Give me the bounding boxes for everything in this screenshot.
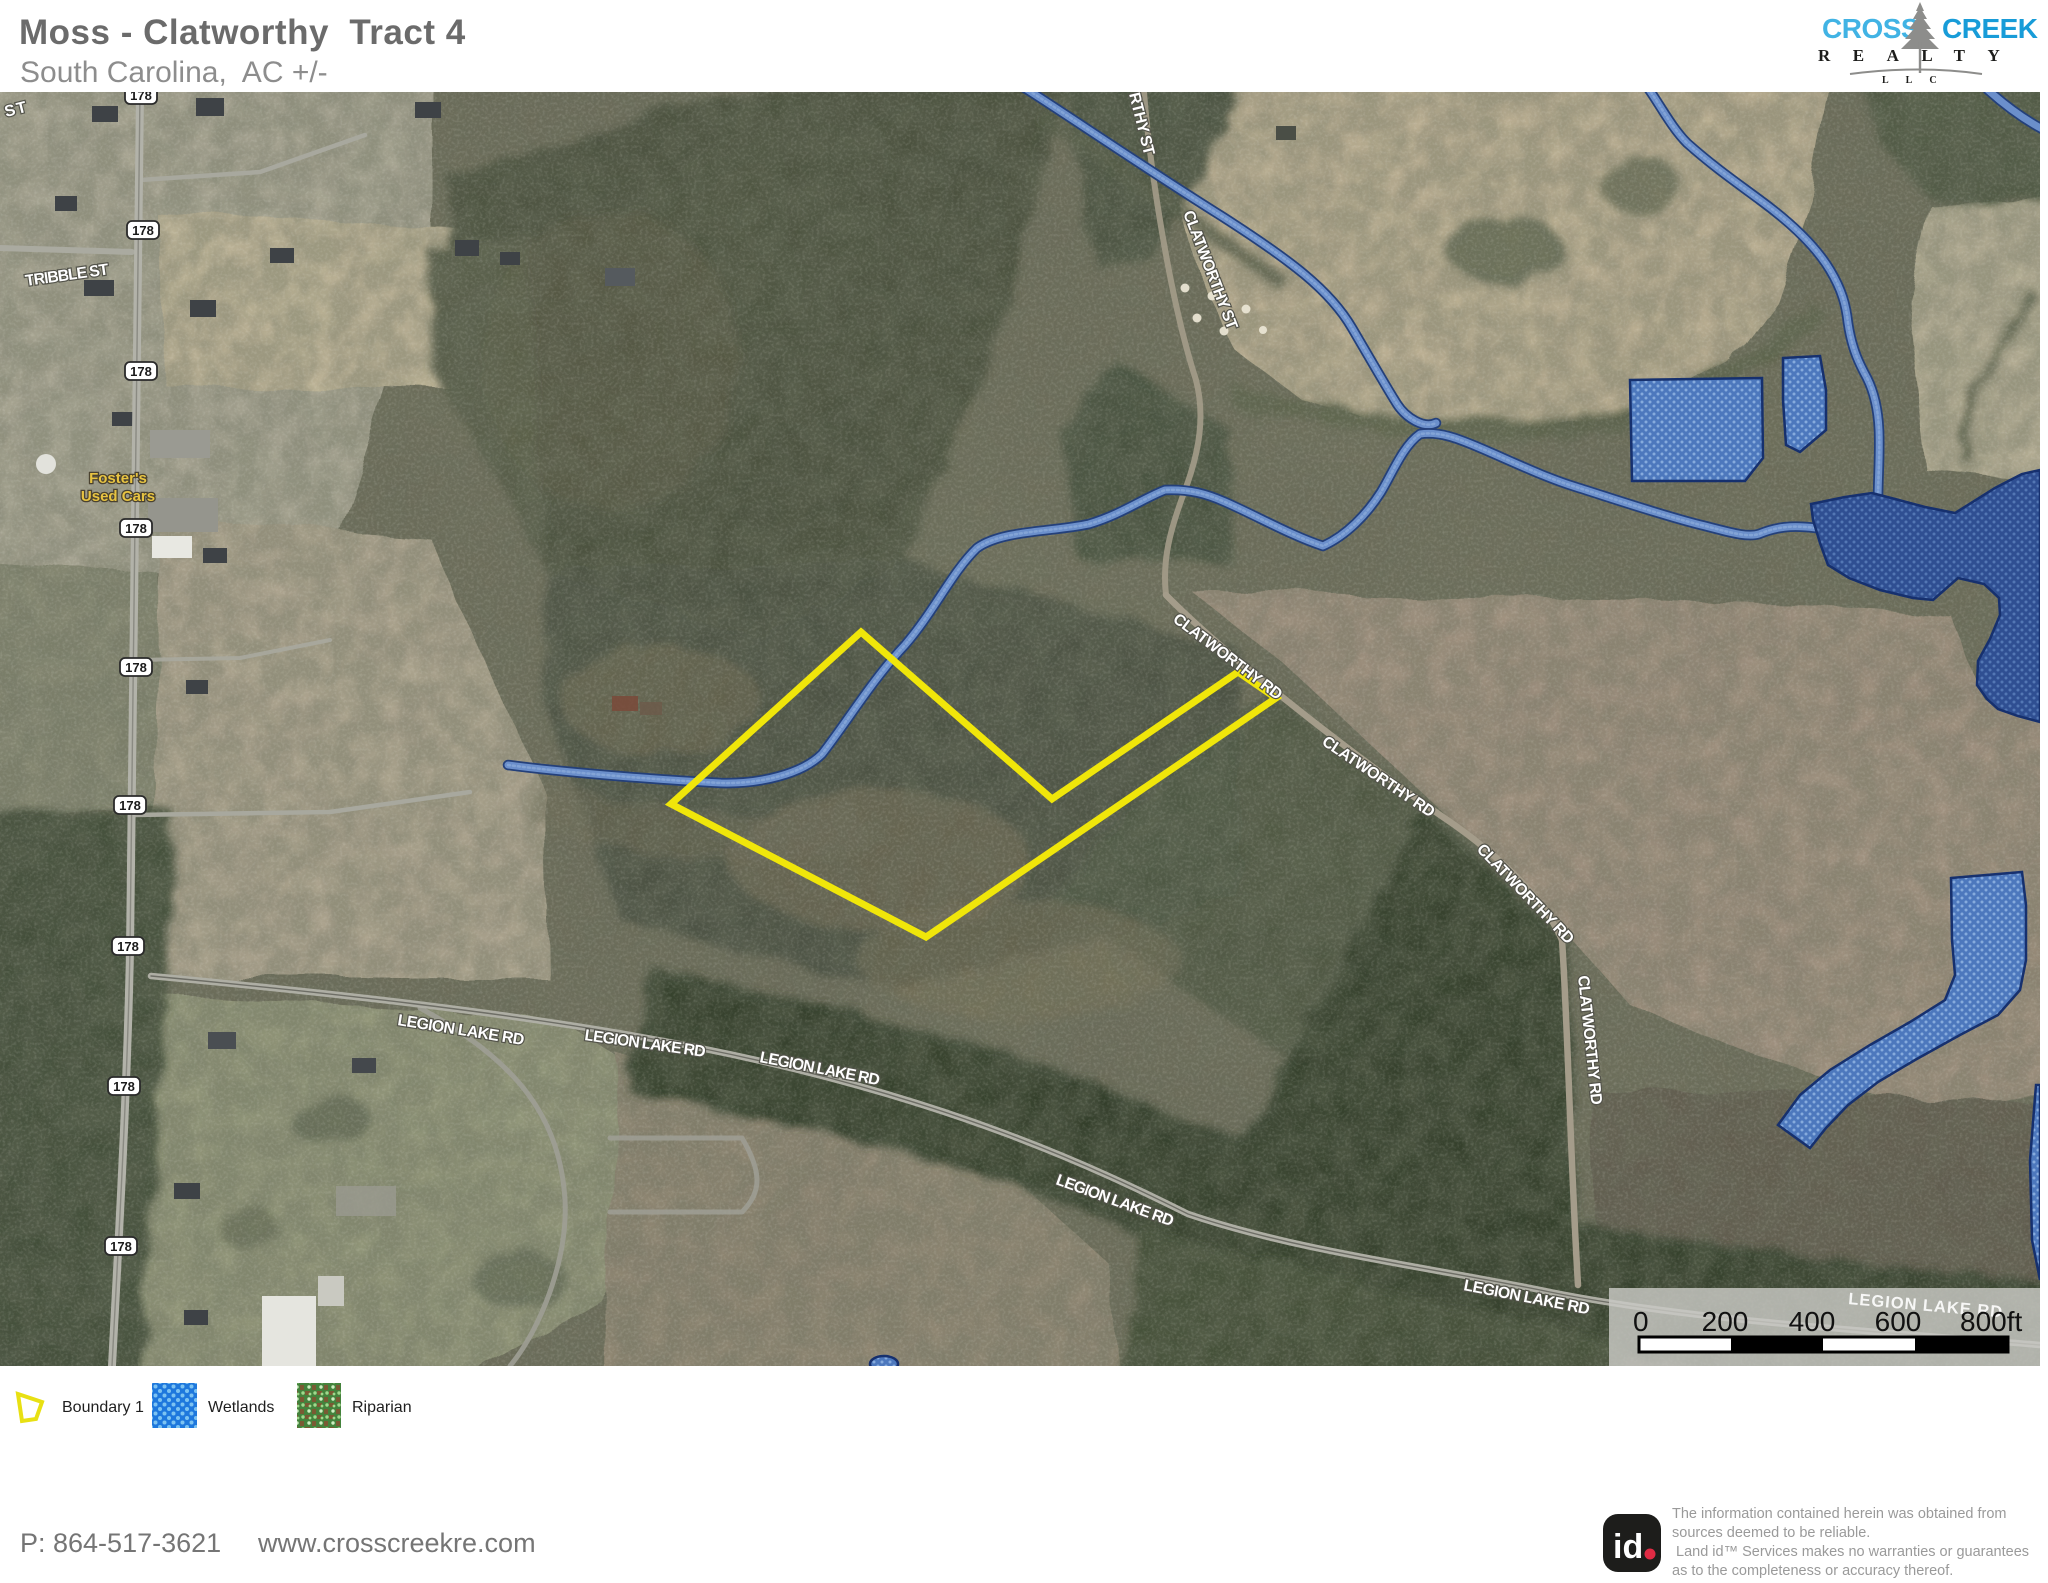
svg-text:CREEK: CREEK — [1942, 13, 2038, 44]
svg-text:600: 600 — [1875, 1306, 1922, 1337]
svg-text:800ft: 800ft — [1960, 1306, 2022, 1337]
svg-text:CROSS: CROSS — [1822, 13, 1919, 44]
svg-text:P: 864-517-3621: P: 864-517-3621 — [20, 1528, 221, 1558]
svg-text:The information contained here: The information contained herein was obt… — [1672, 1506, 2007, 1522]
svg-text:REALTY: REALTY — [1818, 46, 2022, 65]
svg-text:sources deemed to be reliable.: sources deemed to be reliable. — [1672, 1525, 1870, 1541]
svg-text:Land id™ Services makes no war: Land id™ Services makes no warranties or… — [1676, 1544, 2029, 1560]
svg-text:id: id — [1613, 1528, 1643, 1566]
svg-text:www.crosscreekre.com: www.crosscreekre.com — [257, 1528, 536, 1558]
svg-text:0: 0 — [1633, 1306, 1649, 1337]
svg-text:as to the completeness or accu: as to the completeness or accuracy there… — [1672, 1563, 1953, 1579]
svg-text:400: 400 — [1789, 1306, 1836, 1337]
svg-text:LLC: LLC — [1882, 75, 1954, 86]
svg-text:Boundary 1: Boundary 1 — [62, 1399, 144, 1416]
svg-text:200: 200 — [1702, 1306, 1749, 1337]
svg-text:Foster's: Foster's — [89, 470, 147, 487]
svg-text:Used Cars: Used Cars — [81, 488, 155, 505]
svg-text:Riparian: Riparian — [352, 1399, 412, 1416]
svg-text:Wetlands: Wetlands — [208, 1399, 274, 1416]
